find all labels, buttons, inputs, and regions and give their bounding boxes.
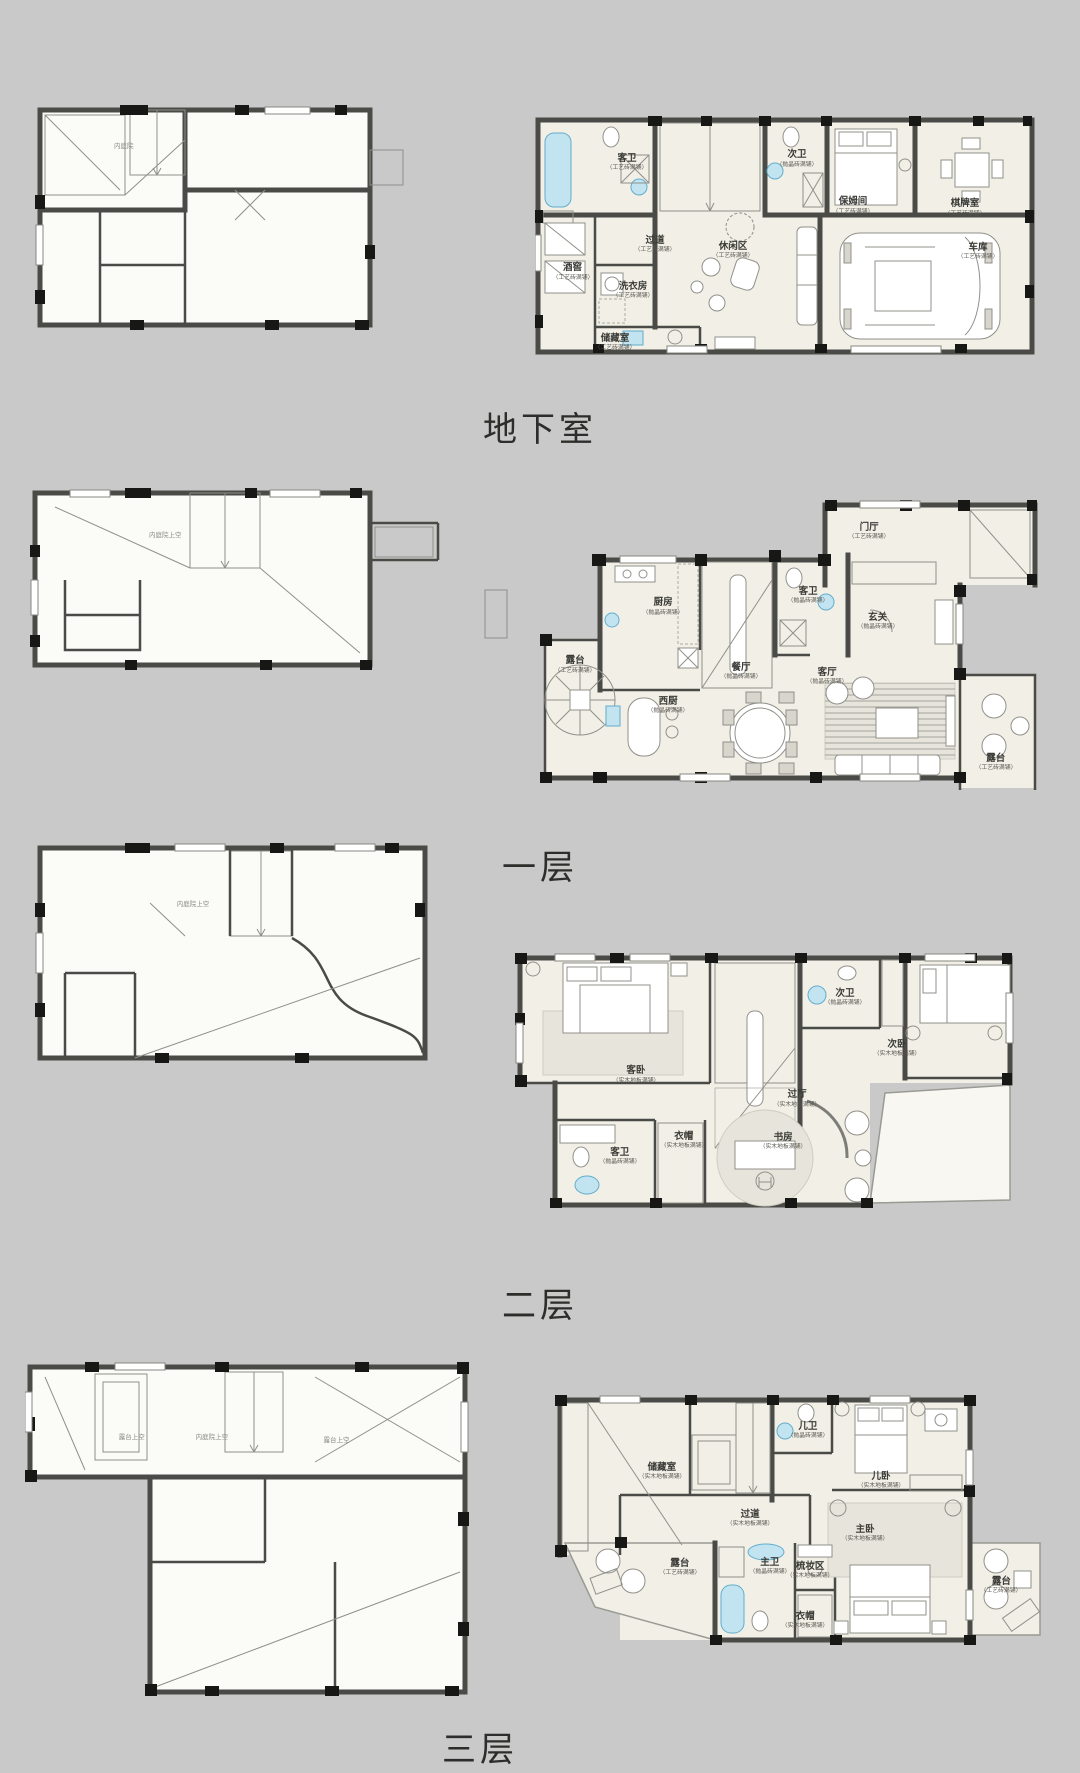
floor3-structural-drawing [25, 1362, 470, 1697]
floor3-furnished-plan: 储藏室（实木地板满铺）儿卫（抛晶砖满铺）儿卧（实木地板满铺）过道（实木地板满铺）… [500, 1395, 1045, 1645]
floor1-furnished-plan: 门厅（工艺砖满铺）厨房（抛晶砖满铺）客卫（抛晶砖满铺）玄关（抛晶砖满铺）露台（工… [480, 500, 1040, 790]
floor2-furnished-plan: 客卧（实木地板满铺）次卫（抛晶砖满铺）次卧（实木地板满铺）过厅（实木地板满铺）客… [495, 953, 1015, 1208]
floor3-title: 三层 [0, 1722, 1080, 1771]
floor3-furnished-drawing [500, 1395, 1045, 1645]
floor2-title: 二层 [0, 1278, 1080, 1327]
basement-structural-drawing [35, 95, 405, 335]
plan-note: 露台上空 [324, 1434, 350, 1444]
basement-furnished-drawing [535, 115, 1035, 355]
floor2-furnished-drawing [495, 953, 1015, 1208]
plan-note: 内庭院上空 [177, 898, 210, 908]
floor1-structural-plan: 内庭院上空 [30, 485, 440, 700]
floor1-furnished-drawing [480, 500, 1040, 790]
basement-structural-plan: 内庭院 [35, 95, 405, 335]
floor3-structural-plan: 露台上空内庭院上空露台上空 [25, 1362, 470, 1697]
floorplan-sheet: { "page": {"background": "#c9c9c9", "typ… [0, 0, 1080, 1773]
plan-note: 内庭院 [114, 140, 134, 150]
floor2-structural-plan: 内庭院上空 [35, 843, 440, 1065]
basement-title: 地下室 [0, 402, 1080, 451]
floor2-structural-drawing [35, 843, 440, 1065]
plan-note: 露台上空 [119, 1431, 145, 1441]
plan-note: 内庭院上空 [196, 1431, 229, 1441]
basement-furnished-plan: 客卫（工艺砖满铺）次卫（抛晶砖满铺）保姆间（工艺砖满铺）棋牌室（工艺砖满铺）过道… [535, 115, 1035, 355]
floor1-structural-drawing [30, 485, 440, 700]
plan-note: 内庭院上空 [149, 529, 182, 539]
